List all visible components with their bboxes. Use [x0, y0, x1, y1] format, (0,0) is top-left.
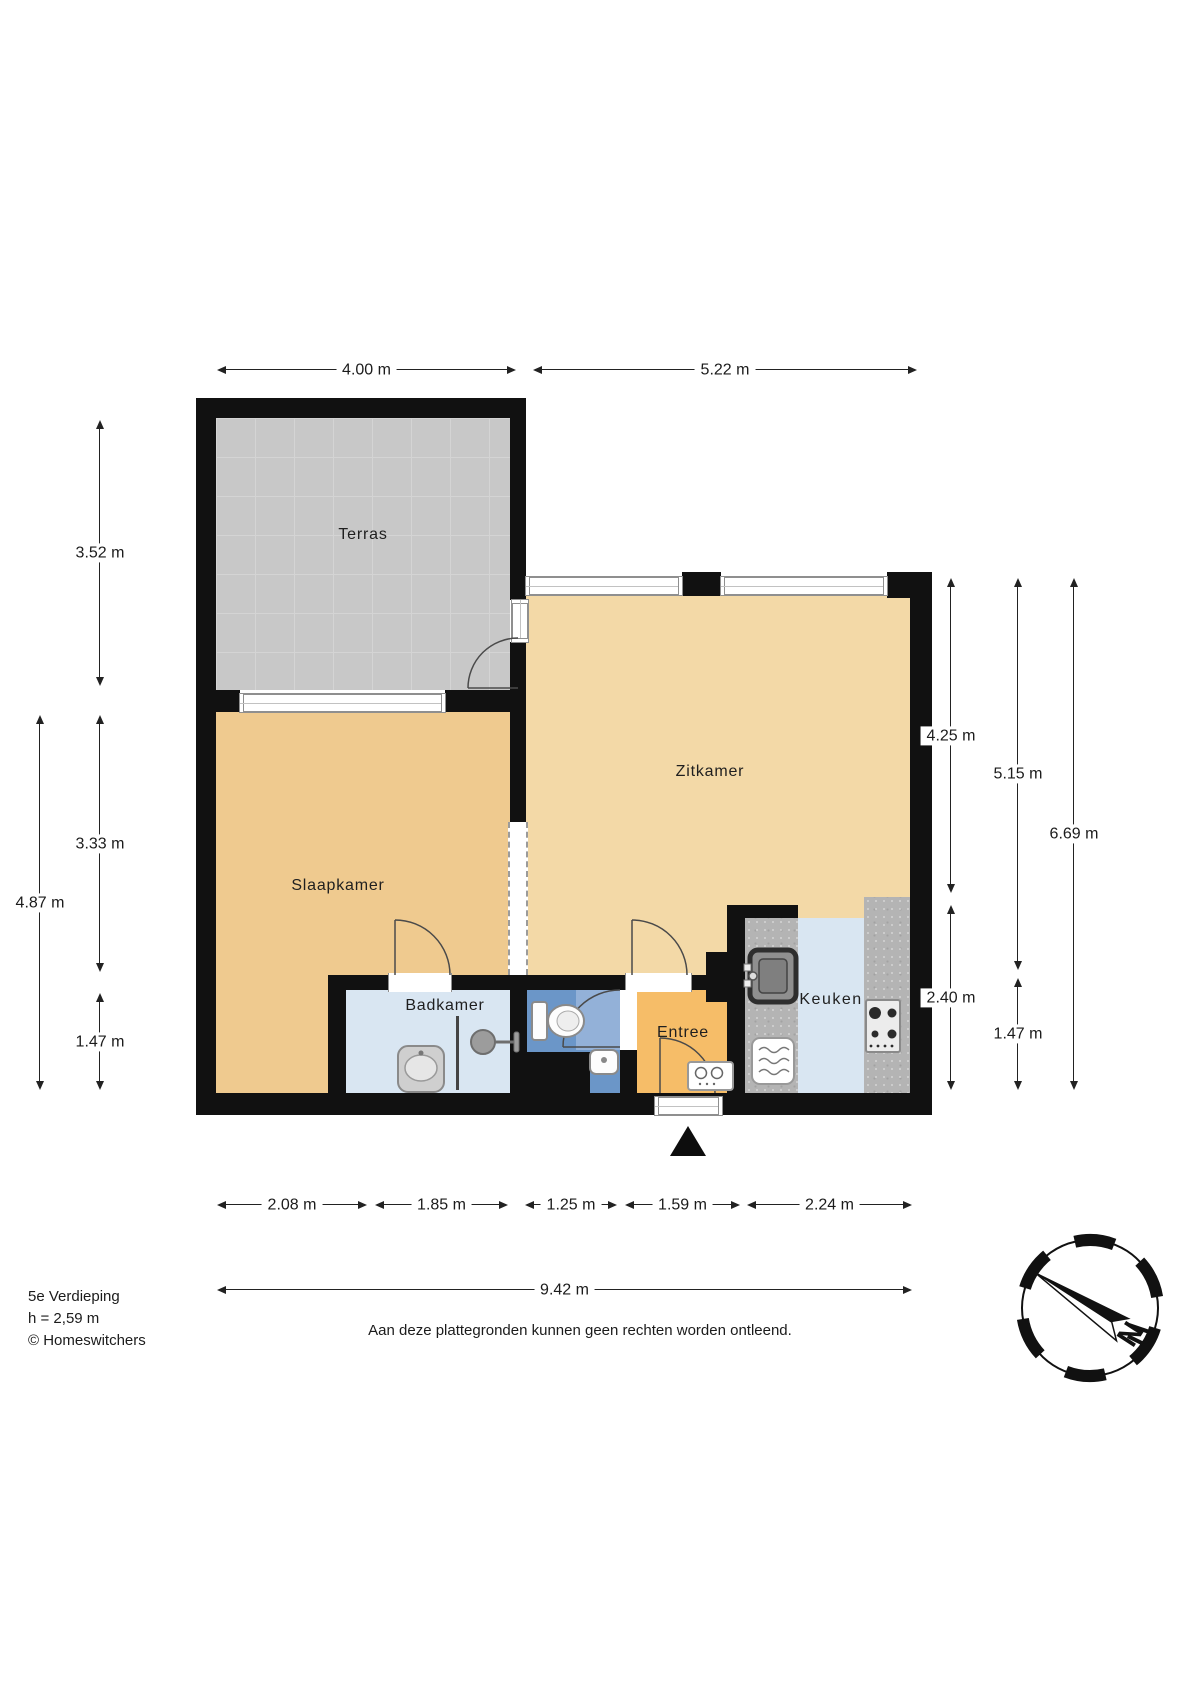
dim-bottom-slaapkamer: 2.08 m [217, 1199, 367, 1211]
kitchen-counter-left [745, 918, 798, 1093]
north-compass-icon: N [976, 1194, 1200, 1422]
dim-left-slaapkamer: 3.33 m [94, 715, 106, 972]
dim-top-zitkamer: 5.22 m [533, 364, 917, 376]
wall-entree-shaft [706, 952, 745, 1002]
floor-plan: N Terras Zitkamer Slaapkamer Badkamer En… [0, 0, 1200, 1696]
dim-right-total: 6.69 m [1068, 578, 1080, 1090]
badkamer-door-gap [388, 973, 452, 992]
wall-terras-top [196, 398, 526, 418]
dim-bottom-badkamer: 1.85 m [375, 1199, 508, 1211]
entrance-door [655, 1096, 722, 1116]
wall-bottom [196, 1093, 932, 1115]
wall-window-pier [682, 572, 721, 596]
wall-terras-right [510, 398, 526, 600]
footer-floor-label: 5e Verdieping [28, 1288, 120, 1305]
wall-toilet-left [510, 975, 527, 1093]
terras-glass-door [511, 600, 529, 642]
dim-bottom-entree: 1.59 m [625, 1199, 740, 1211]
dim-left-terras: 3.52 m [94, 420, 106, 686]
entrance-triangle-icon [670, 1126, 706, 1156]
footer-disclaimer: Aan deze plattegronden kunnen geen recht… [300, 1322, 860, 1339]
window-zitkamer-1 [526, 576, 682, 596]
room-label-badkamer: Badkamer [405, 997, 484, 1015]
wall-entree-right [727, 918, 745, 1093]
room-label-slaapkamer: Slaapkamer [291, 877, 384, 895]
dim-top-terras: 4.00 m [217, 364, 516, 376]
footer-ceiling-height: h = 2,59 m [28, 1310, 99, 1327]
wall-badkamer-top-2 [450, 975, 510, 990]
wall-left [196, 398, 216, 1115]
dim-left-badkamer: 1.47 m [94, 993, 106, 1090]
dim-right-zitkamer-upper: 4.25 m [945, 578, 957, 893]
window-zitkamer-2 [721, 576, 887, 596]
room-label-terras: Terras [338, 526, 387, 544]
room-label-keuken: Keuken [799, 991, 862, 1009]
dim-bottom-toilet: 1.25 m [525, 1199, 617, 1211]
kitchen-counter-right [864, 897, 910, 1093]
wall-keuken-top [727, 905, 798, 918]
dim-right-strip: 1.47 m [1012, 978, 1024, 1090]
room-divider-opening [508, 822, 528, 975]
wall-right [910, 596, 932, 1115]
footer-credit: © Homeswitchers [28, 1332, 146, 1349]
wall-toilet-duct [527, 1052, 590, 1093]
wall-badkamer-left [328, 975, 346, 1093]
dim-left-total: 4.87 m [34, 715, 46, 1090]
room-terras-floor [216, 418, 510, 690]
wall-terras-bottom-left [196, 690, 240, 712]
compass-north-label: N [1111, 1316, 1150, 1352]
window-terras-bottom [240, 693, 445, 713]
room-label-entree: Entree [657, 1024, 709, 1042]
room-label-zitkamer: Zitkamer [676, 763, 745, 781]
wall-divider [510, 642, 526, 822]
wall-toilet-top [510, 975, 625, 990]
dim-right-zitkamer-full: 5.15 m [1012, 578, 1024, 970]
dim-bottom-keuken: 2.24 m [747, 1199, 912, 1211]
dim-right-keuken: 2.40 m [945, 905, 957, 1090]
toilet-door-gap [620, 990, 637, 1050]
room-toilet-floor-light [576, 990, 620, 1050]
wall-corner-ne [887, 572, 932, 598]
dim-bottom-total: 9.42 m [217, 1284, 912, 1296]
